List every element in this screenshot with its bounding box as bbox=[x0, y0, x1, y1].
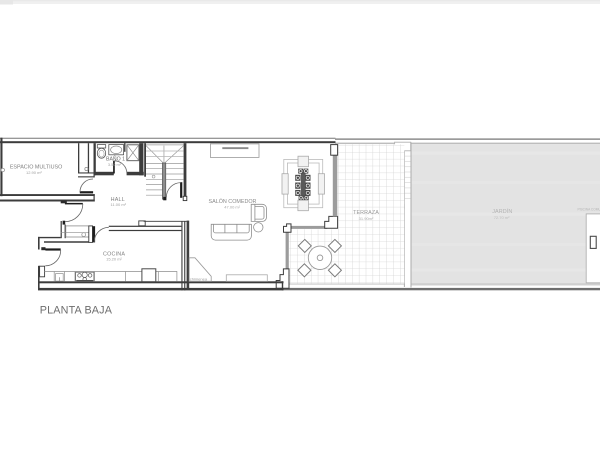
svg-text:15.20 m²: 15.20 m² bbox=[106, 257, 122, 262]
svg-text:47.00 m²: 47.00 m² bbox=[224, 205, 240, 210]
svg-text:chimenea: chimenea bbox=[190, 277, 208, 282]
svg-text:31.90m²: 31.90m² bbox=[359, 216, 374, 221]
svg-text:PISCINA COMUNITARIA: PISCINA COMUNITARIA bbox=[577, 208, 600, 212]
svg-text:JARDÍN: JARDÍN bbox=[492, 208, 512, 215]
svg-text:11.00 m²: 11.00 m² bbox=[111, 202, 127, 207]
svg-text:PLANTA BAJA: PLANTA BAJA bbox=[40, 304, 113, 316]
svg-text:12.90 m²: 12.90 m² bbox=[26, 170, 42, 175]
svg-text:72.70 m²: 72.70 m² bbox=[494, 215, 510, 220]
svg-text:3.50 m²: 3.50 m² bbox=[108, 162, 122, 167]
